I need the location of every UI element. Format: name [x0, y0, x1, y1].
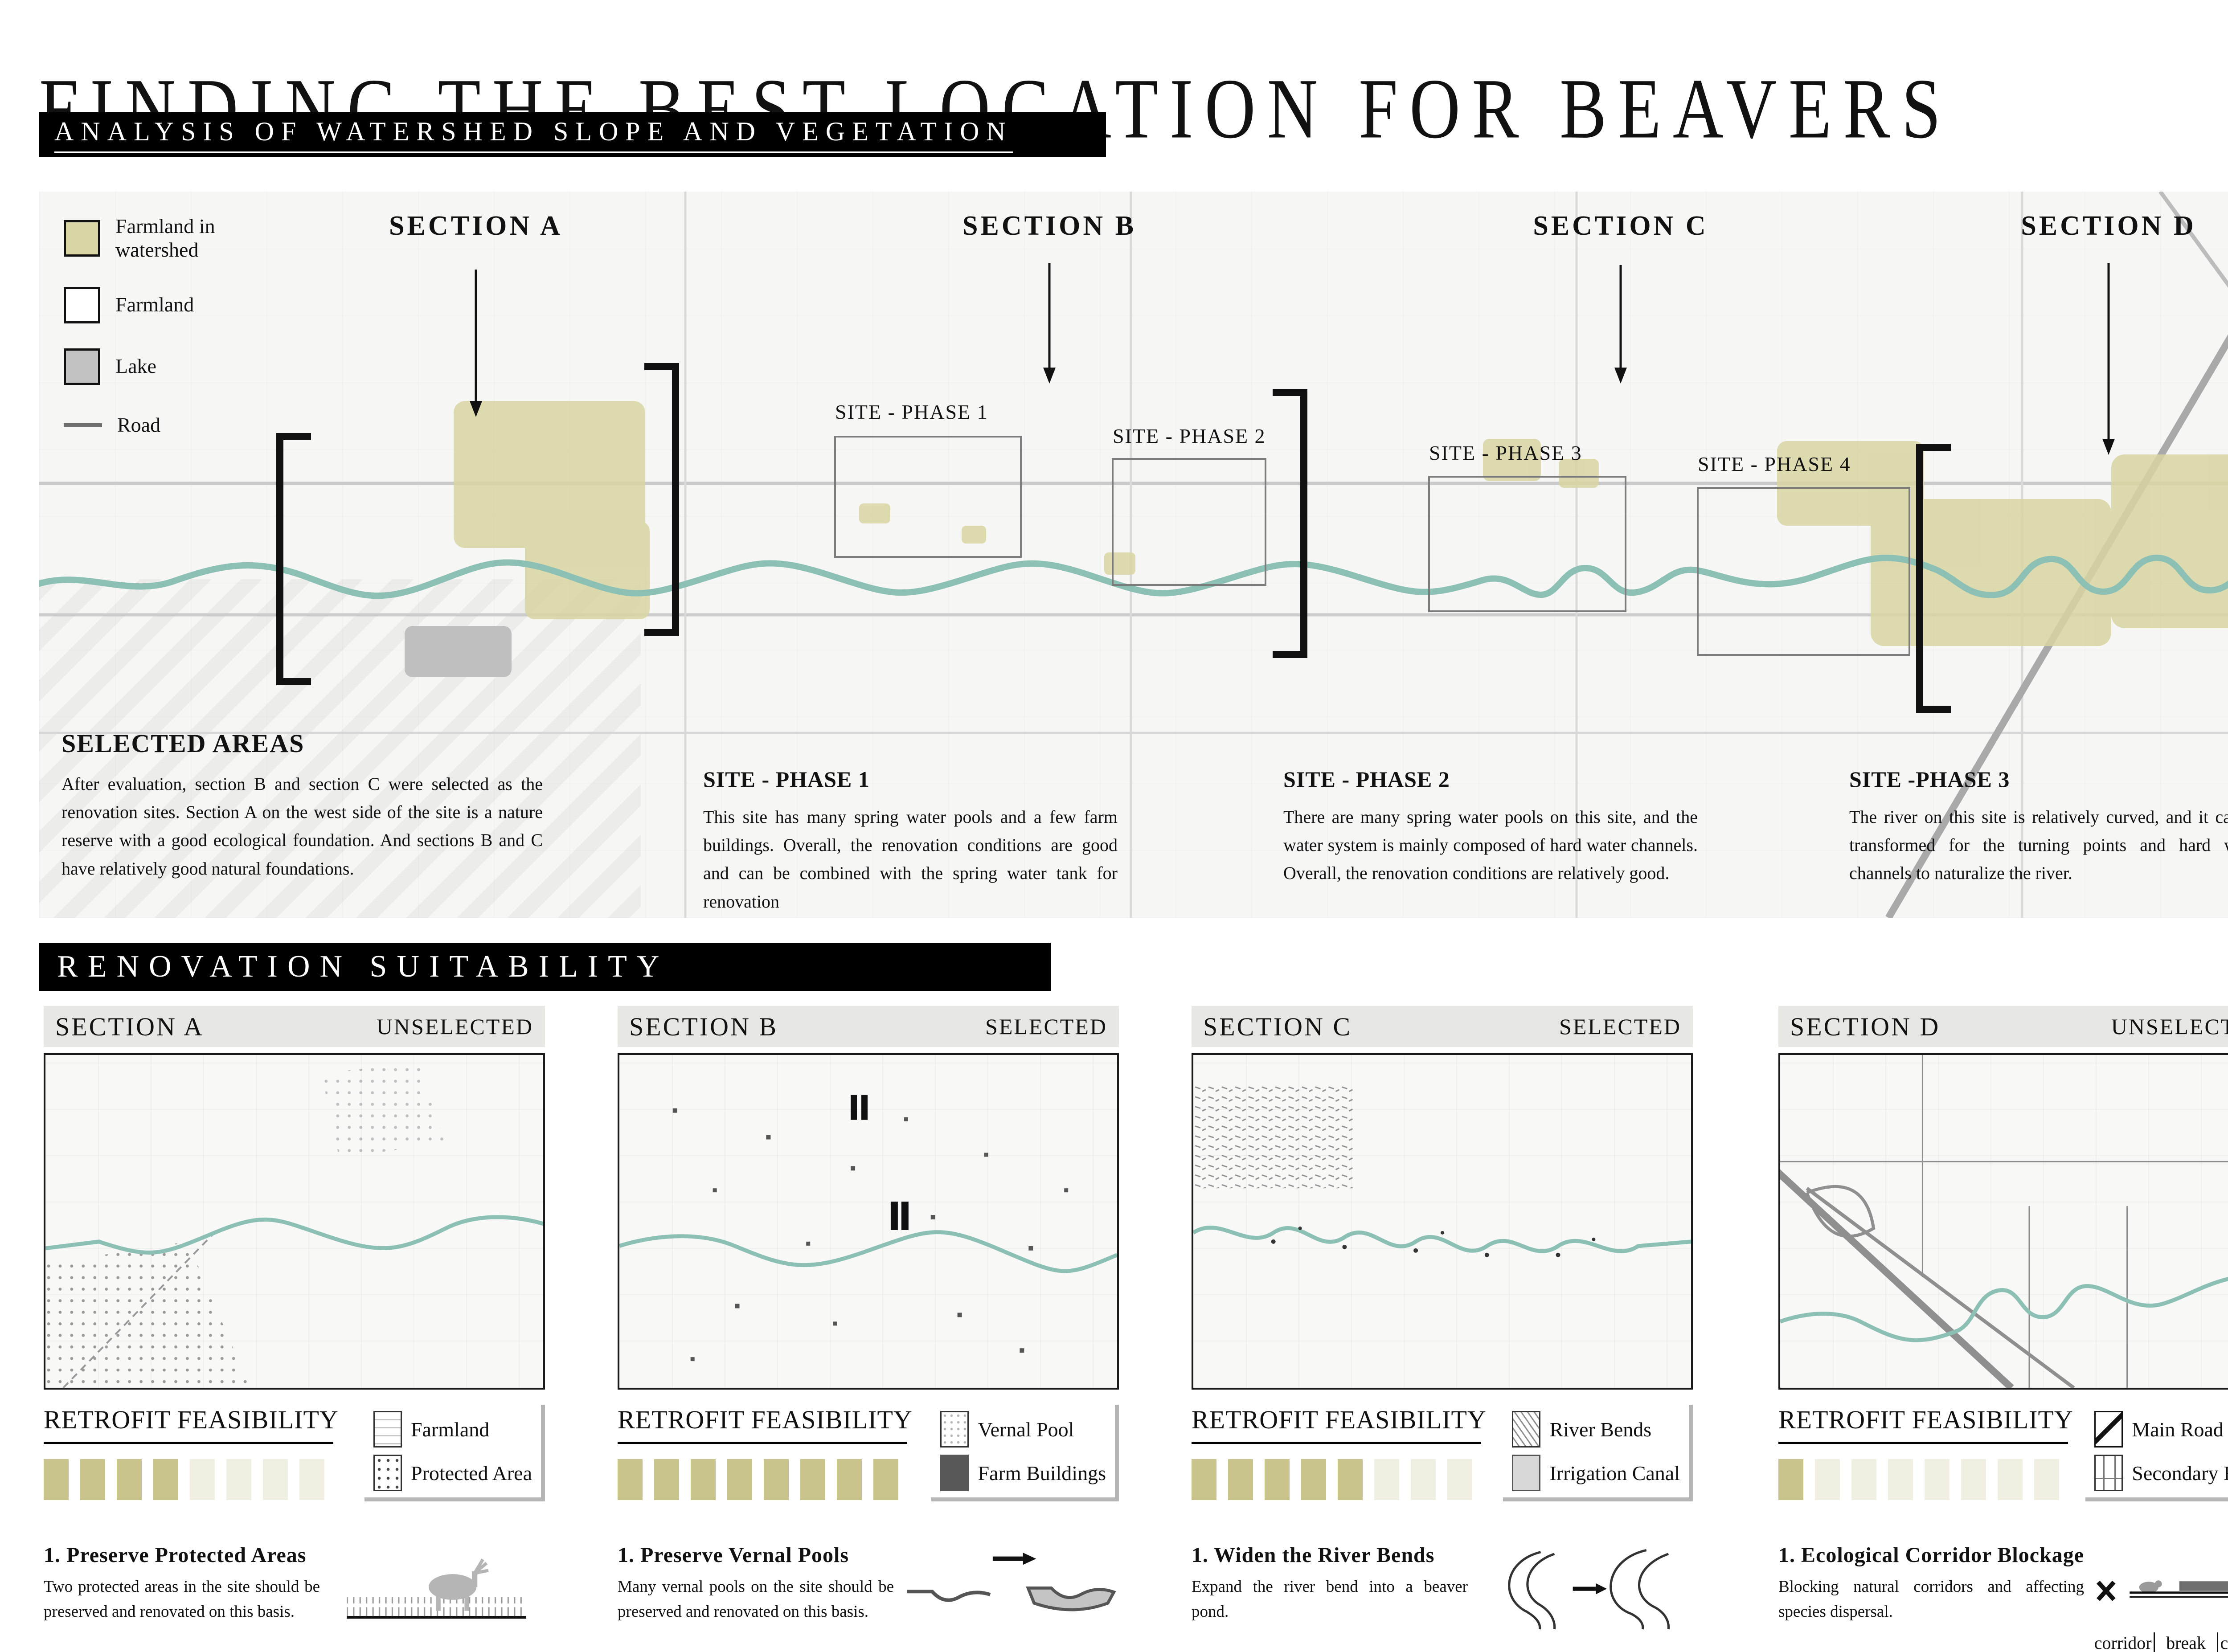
river-bends-swatch [1512, 1411, 1540, 1448]
building-dots [673, 1108, 1068, 1361]
section-arrows [476, 263, 2228, 439]
feasibility-square [873, 1459, 898, 1500]
panel-legend: River Bends Irrigation Canal [1503, 1405, 1693, 1501]
section-label-d: SECTION D [1970, 210, 2228, 242]
legend-row-road: Road [64, 410, 262, 441]
item-title: 1. Preserve Vernal Pools [618, 1543, 894, 1567]
feasibility-square [1888, 1459, 1913, 1500]
phase-label-4: SITE - PHASE 4 [1698, 452, 1851, 476]
feasibility-square [1815, 1459, 1840, 1500]
subtitle-text: ANALYSIS OF WATERSHED SLOPE AND VEGETATI… [54, 116, 1013, 153]
item-body: Blocking natural corridors and affecting… [1778, 1574, 2084, 1624]
map-legend: Farmland in watershed Farmland Lake Road [64, 215, 262, 441]
panel-status-label: SELECTED [1559, 1014, 1681, 1039]
panel-legend: Main Road Secondary Road [2085, 1405, 2228, 1501]
feasibility-square [80, 1459, 105, 1500]
lake-patch [405, 626, 512, 677]
speckle-region [1193, 1086, 1353, 1188]
phase-heading: SITE - PHASE 2 [1283, 766, 1698, 792]
phase-heading: SITE -PHASE 3 [1849, 766, 2228, 792]
feasibility-square [727, 1459, 752, 1500]
legend-label: Vernal Pool [978, 1418, 1074, 1441]
retrofit-title: RETROFIT FEASIBILITY [618, 1405, 907, 1444]
feasibility-square [226, 1459, 251, 1500]
road-swatch [64, 423, 102, 427]
feasibility-square [1998, 1459, 2023, 1500]
protected-area-patch [321, 1064, 446, 1157]
legend-label: Farm Buildings [978, 1461, 1106, 1485]
feasibility-square [263, 1459, 288, 1500]
feasibility-square [44, 1459, 69, 1500]
main-road-swatch [2094, 1411, 2123, 1448]
main-road [1780, 1166, 2011, 1388]
item-title: 1. Widen the River Bends [1192, 1543, 1468, 1567]
panel-section-label: SECTION D [1790, 1012, 1940, 1042]
panel-status-label: SELECTED [985, 1014, 1107, 1039]
retrofit-item-1: 1. Ecological Corridor Blockage Blocking… [1778, 1543, 2228, 1652]
pool-preserve-icon [902, 1543, 1119, 1632]
renovation-banner-text: RENOVATION SUITABILITY [57, 949, 669, 985]
panel-status-label: UNSELECTED [2111, 1014, 2228, 1039]
section-label-c: SECTION C [1483, 210, 1759, 242]
minimap-d-graphics [1780, 1055, 2228, 1388]
minimap-b-graphics [619, 1055, 1117, 1388]
feasibility-square [299, 1459, 324, 1500]
retrofit-title: RETROFIT FEASIBILITY [1192, 1405, 1481, 1444]
legend-label: Road [117, 413, 160, 437]
feasibility-square [1374, 1459, 1399, 1500]
phase-label-3: SITE - PHASE 3 [1429, 441, 1582, 465]
retrofit-block: RETROFIT FEASIBILITY Main Road Secondary… [1778, 1405, 2228, 1523]
irrigation-canal-swatch [1512, 1455, 1540, 1491]
panel-header: SECTION B SELECTED [618, 1006, 1119, 1047]
selected-areas-block: SELECTED AREAS After evaluation, section… [61, 728, 543, 898]
legend-label: Farmland [115, 293, 194, 317]
feasibility-square [1265, 1459, 1290, 1500]
feasibility-square [691, 1459, 716, 1500]
item-title: 1. Preserve Protected Areas [44, 1543, 320, 1567]
item-body: Many vernal pools on the site should be … [618, 1574, 894, 1624]
poster: FINDING THE BEST LOCATION FOR BEAVERS AN… [0, 0, 2228, 1652]
minimap-river [619, 1232, 1117, 1271]
farm-buildings-swatch [940, 1455, 969, 1491]
retrofit-block: RETROFIT FEASIBILITY River Bends Irrigat… [1192, 1405, 1693, 1523]
legend-label: Irrigation Canal [1549, 1461, 1680, 1485]
feasibility-square [2034, 1459, 2059, 1500]
panel-header: SECTION A UNSELECTED [44, 1006, 545, 1047]
feasibility-square [1411, 1459, 1436, 1500]
minimap-c-graphics [1193, 1055, 1691, 1388]
panel-section-a: SECTION A UNSELECTED RETROFIT FEASIBILIT… [44, 1006, 545, 1652]
protected-area-swatch [373, 1455, 402, 1491]
selected-areas-body: After evaluation, section B and section … [61, 770, 543, 883]
segment-label: corridor [2092, 1632, 2154, 1652]
feasibility-square [800, 1459, 825, 1500]
panel-section-label: SECTION A [55, 1012, 204, 1042]
panel-header: SECTION D UNSELECTED [1778, 1006, 2228, 1047]
feasibility-square [1851, 1459, 1876, 1500]
legend-label: Farmland in watershed [115, 215, 262, 262]
lake-swatch [64, 348, 100, 385]
renovation-banner: RENOVATION SUITABILITY [39, 943, 1051, 991]
legend-label: Secondary Road [2132, 1461, 2228, 1485]
farmland-swatch [64, 287, 100, 323]
feasibility-square [1192, 1459, 1216, 1500]
site-phase-1-block: SITE - PHASE 1 This site has many spring… [703, 766, 1118, 931]
panel-section-label: SECTION C [1203, 1012, 1352, 1042]
building-markers [851, 1095, 909, 1230]
corridor-blockage-icon: corridor break corridor [2092, 1543, 2228, 1652]
panel-header: SECTION C SELECTED [1192, 1006, 1693, 1047]
panel-status-label: UNSELECTED [377, 1014, 533, 1039]
farmland-watershed-swatch [64, 220, 100, 257]
minimap-b [618, 1053, 1119, 1390]
retrofit-title: RETROFIT FEASIBILITY [1778, 1405, 2068, 1444]
minimap-a [44, 1053, 545, 1390]
site-phase-2-block: SITE - PHASE 2 There are many spring wat… [1283, 766, 1698, 903]
minimap-river [1780, 1276, 2228, 1340]
legend-row-farmland: Farmland [64, 287, 262, 323]
feasibility-square [1338, 1459, 1363, 1500]
retrofit-block: RETROFIT FEASIBILITY Farmland Protected … [44, 1405, 545, 1523]
feasibility-square [837, 1459, 862, 1500]
panel-section-b: SECTION B SELECTED RETROFIT FEAS [618, 1006, 1119, 1652]
panel-section-d: SECTION D UNSELECTED RETROFIT FEASIBILIT… [1778, 1006, 2228, 1652]
retrofit-title: RETROFIT FEASIBILITY [44, 1405, 333, 1444]
feasibility-square [764, 1459, 789, 1500]
segment-label: corridor [2218, 1632, 2228, 1652]
feasibility-square [1228, 1459, 1253, 1500]
farmland-pattern-swatch [373, 1411, 402, 1448]
phase-body: There are many spring water pools on thi… [1283, 803, 1698, 887]
main-road [1807, 1188, 2074, 1388]
secondary-road-swatch [2094, 1455, 2123, 1491]
retrofit-block: RETROFIT FEASIBILITY Vernal Pool Farm Bu… [618, 1405, 1119, 1523]
feasibility-square [117, 1459, 142, 1500]
moose-grass-icon [328, 1543, 545, 1632]
minimap-c [1192, 1053, 1693, 1390]
feasibility-square [618, 1459, 643, 1500]
feasibility-square [1961, 1459, 1986, 1500]
feasibility-square [1925, 1459, 1949, 1500]
subtitle-banner: ANALYSIS OF WATERSHED SLOPE AND VEGETATI… [39, 112, 1106, 157]
item-body: Expand the river bend into a beaver pond… [1192, 1574, 1468, 1624]
farmland-patches [454, 379, 2228, 708]
legend-label: River Bends [1549, 1418, 1651, 1441]
feasibility-square [654, 1459, 679, 1500]
item-body: Two protected areas in the site should b… [44, 1574, 320, 1624]
phase-heading: SITE - PHASE 1 [703, 766, 1118, 792]
panel-legend: Farmland Protected Area [365, 1405, 545, 1501]
minimap-a-graphics [45, 1055, 543, 1388]
legend-label: Main Road [2132, 1418, 2224, 1441]
feasibility-square [153, 1459, 178, 1500]
phase-body: The river on this site is relatively cur… [1849, 803, 2228, 887]
legend-label: Lake [115, 355, 156, 378]
minimap-d [1778, 1053, 2228, 1390]
phase-label-2: SITE - PHASE 2 [1113, 424, 1266, 448]
selected-areas-heading: SELECTED AREAS [61, 728, 543, 758]
segment-label: break [2154, 1632, 2218, 1652]
feasibility-square [1778, 1459, 1803, 1500]
feasibility-square [1447, 1459, 1472, 1500]
feasibility-square [1301, 1459, 1326, 1500]
panel-section-label: SECTION B [629, 1012, 778, 1042]
panel-legend: Vernal Pool Farm Buildings [931, 1405, 1119, 1501]
vernal-pool-swatch [940, 1411, 969, 1448]
phase-body: This site has many spring water pools an… [703, 803, 1118, 916]
site-phase-3-block: SITE -PHASE 3 The river on this site is … [1849, 766, 2228, 903]
section-label-b: SECTION B [911, 210, 1188, 242]
protected-area-patch [45, 1242, 250, 1388]
retrofit-item-1: 1. Preserve Vernal Pools Many vernal poo… [618, 1543, 1119, 1632]
legend-row-lake: Lake [64, 348, 262, 385]
phase-label-1: SITE - PHASE 1 [835, 400, 988, 424]
legend-label: Farmland [411, 1418, 489, 1441]
watershed-map: Farmland in watershed Farmland Lake Road… [39, 192, 2228, 918]
panel-section-c: SECTION C SELECTED RETROFIT FEASIBILITY … [1192, 1006, 1693, 1652]
minimap-river [45, 1217, 543, 1253]
feasibility-square [190, 1459, 215, 1500]
legend-row-farmland-watershed: Farmland in watershed [64, 215, 262, 262]
retrofit-item-1: 1. Preserve Protected Areas Two protecte… [44, 1543, 545, 1632]
retrofit-item-1: 1. Widen the River Bends Expand the rive… [1192, 1543, 1693, 1632]
corridor-break-labels: corridor break corridor [2092, 1632, 2228, 1652]
section-arrowheads [470, 336, 2228, 455]
legend-label: Protected Area [411, 1461, 532, 1485]
section-label-a: SECTION A [338, 210, 614, 242]
river-bend-icon [1476, 1543, 1693, 1632]
item-title: 1. Ecological Corridor Blockage [1778, 1543, 2084, 1567]
